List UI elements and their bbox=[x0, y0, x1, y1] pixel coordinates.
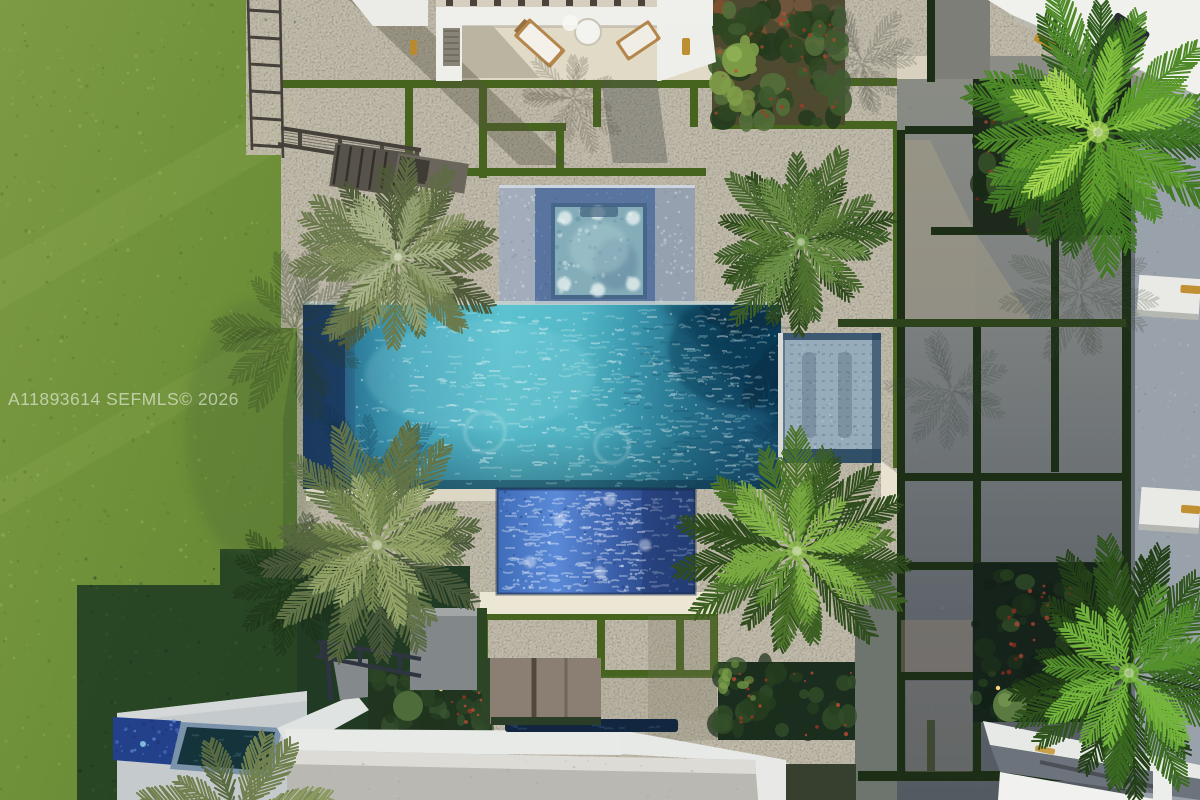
svg-text:A11893614 SEFMLS© 2026: A11893614 SEFMLS© 2026 bbox=[8, 389, 239, 409]
